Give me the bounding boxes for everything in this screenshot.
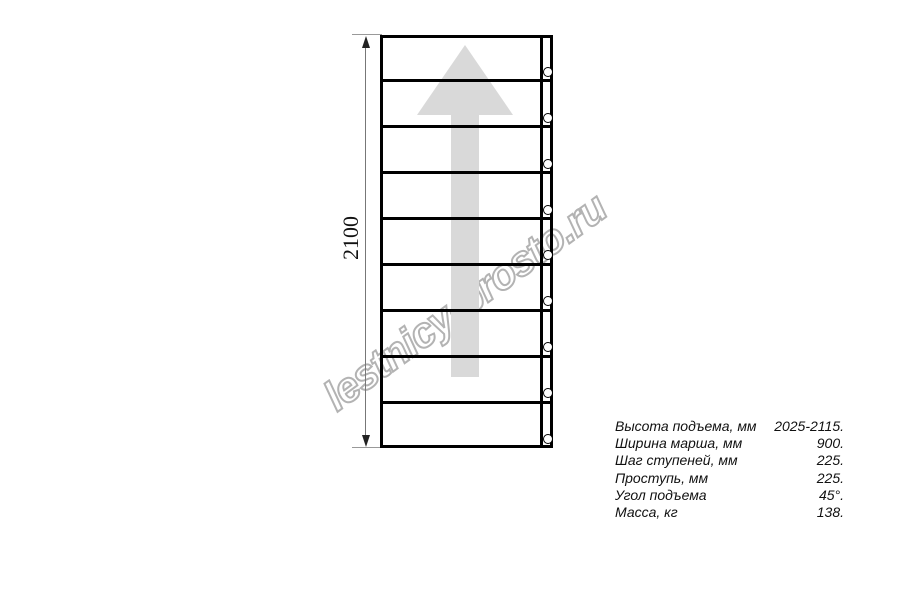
drawing-canvas: lestnicy-prosto.ru 2100 Высота подъема, … (0, 0, 900, 600)
extension-line-top (352, 34, 382, 35)
spec-table: Высота подъема, мм2025-2115.Ширина марша… (615, 418, 844, 521)
dimension-arrow-down-icon (362, 435, 370, 447)
mount-hole (543, 113, 553, 123)
tread-line (380, 217, 553, 220)
spec-row: Шаг ступеней, мм225. (615, 452, 844, 469)
mount-hole (543, 67, 553, 77)
stringer-line (540, 35, 543, 448)
spec-value: 2025-2115. (774, 418, 844, 435)
spec-value: 225. (817, 452, 844, 469)
dimension-line (365, 44, 366, 436)
spec-row: Высота подъема, мм2025-2115. (615, 418, 844, 435)
spec-value: 225. (817, 470, 844, 487)
spec-label: Ширина марша, мм (615, 435, 742, 452)
spec-row: Угол подъема45°. (615, 487, 844, 504)
dimension-label: 2100 (338, 216, 364, 260)
spec-label: Высота подъема, мм (615, 418, 757, 435)
tread-line (380, 355, 553, 358)
spec-value: 138. (817, 504, 844, 521)
tread-line (380, 263, 553, 266)
spec-row: Проступь, мм225. (615, 470, 844, 487)
mount-hole (543, 159, 553, 169)
mount-hole (543, 205, 553, 215)
spec-label: Проступь, мм (615, 470, 708, 487)
mount-hole (543, 434, 553, 444)
spec-row: Ширина марша, мм900. (615, 435, 844, 452)
tread-line (380, 171, 553, 174)
spec-label: Масса, кг (615, 504, 678, 521)
tread-line (380, 401, 553, 404)
extension-line-bottom (352, 447, 382, 448)
spec-label: Шаг ступеней, мм (615, 452, 738, 469)
tread-line (380, 309, 553, 312)
dimension-arrow-up-icon (362, 36, 370, 48)
spec-value: 900. (817, 435, 844, 452)
spec-value: 45°. (819, 487, 844, 504)
spec-label: Угол подъема (615, 487, 707, 504)
tread-line (380, 79, 553, 82)
tread-line (380, 125, 553, 128)
spec-row: Масса, кг138. (615, 504, 844, 521)
stair-plan-rect (380, 35, 553, 448)
